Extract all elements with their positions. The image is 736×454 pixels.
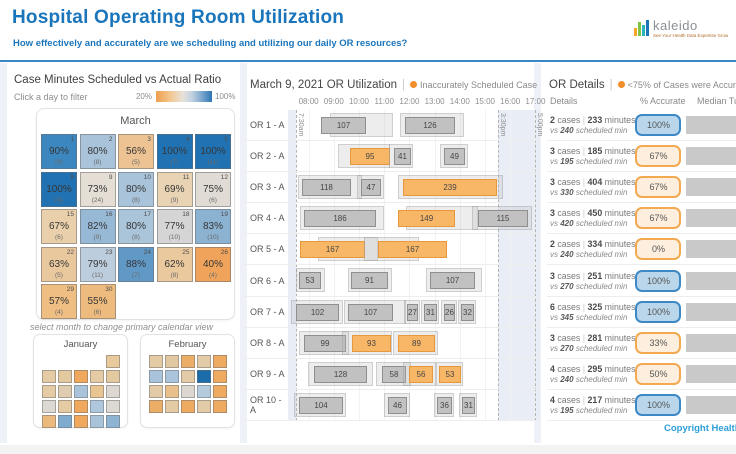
day-ratio: 62%: [158, 259, 192, 270]
or-detail-row[interactable]: 2 cases | 233 minutesvs 240 scheduled mi…: [547, 110, 736, 141]
page-subtitle: How effectively and accurately are we sc…: [13, 38, 407, 49]
gantt-rows: OR 1 - A107126OR 2 - A954149OR 3 - A1184…: [243, 110, 540, 421]
hour-tick: 13:00: [421, 97, 449, 106]
case-bar[interactable]: 53: [439, 366, 461, 383]
calendar-day-19[interactable]: 1983%(10): [195, 209, 231, 244]
details-column-header: Details: [550, 96, 578, 106]
mini-day[interactable]: [165, 400, 179, 413]
detail-scheduled: vs 195 scheduled min: [550, 406, 635, 415]
case-bar[interactable]: 167: [378, 241, 447, 258]
kaleido-logo-tagline: See Your Health Data Expertise Grow: [653, 33, 728, 38]
median-turnover-cell: [681, 365, 736, 383]
day-case-count: (8): [119, 234, 153, 241]
calendar-day-15[interactable]: 1567%(6): [41, 209, 77, 244]
day-number: 2: [109, 136, 113, 143]
day-ratio: 55%: [81, 296, 115, 307]
detail-cases-minutes: 6 cases | 325 minutes: [550, 302, 635, 312]
hour-tick: 12:00: [395, 97, 423, 106]
mini-day[interactable]: [90, 415, 104, 428]
mini-month-title: February: [141, 339, 234, 350]
day-case-count: (10): [196, 234, 230, 241]
or-detail-row[interactable]: 4 cases | 217 minutesvs 195 scheduled mi…: [547, 390, 736, 421]
mini-day[interactable]: [106, 415, 120, 428]
or-room-label: OR 1 - A: [243, 110, 288, 140]
accuracy-cell: 100%: [635, 114, 681, 136]
hour-tick: 09:00: [320, 97, 348, 106]
day-case-count: (4): [42, 309, 76, 316]
detail-text: 2 cases | 334 minutesvs 240 scheduled mi…: [547, 239, 635, 259]
detail-scheduled: vs 240 scheduled min: [550, 250, 635, 259]
day-case-count: (9): [81, 234, 115, 241]
gantt-row: OR 2 - A954149: [243, 141, 540, 172]
median-turnover-bar: [686, 272, 736, 290]
mini-day[interactable]: [213, 400, 227, 413]
mini-day[interactable]: [58, 370, 72, 383]
day-case-count: (6): [42, 234, 76, 241]
detail-text: 3 cases | 185 minutesvs 195 scheduled mi…: [547, 146, 635, 166]
case-bar[interactable]: 26: [444, 304, 455, 321]
day-number: 23: [105, 249, 112, 256]
accuracy-legend-dot-icon: [618, 81, 625, 88]
or-detail-row[interactable]: 4 cases | 295 minutesvs 240 scheduled mi…: [547, 359, 736, 390]
accuracy-badge: 67%: [635, 145, 681, 167]
case-bar[interactable]: 102: [296, 304, 339, 321]
median-turnover-bar: [686, 147, 736, 165]
mini-day[interactable]: [149, 400, 163, 413]
mini-day[interactable]: [181, 400, 195, 413]
case-bar[interactable]: 95: [350, 148, 390, 165]
case-bar[interactable]: 107: [348, 304, 393, 321]
mini-day[interactable]: [42, 415, 56, 428]
detail-cases-minutes: 2 cases | 233 minutes: [550, 115, 635, 125]
day-ratio: 88%: [119, 259, 153, 270]
detail-cases-minutes: 3 cases | 251 minutes: [550, 271, 635, 281]
accuracy-badge: 100%: [635, 394, 681, 416]
detail-scheduled: vs 240 scheduled min: [550, 126, 635, 135]
day-ratio: 80%: [119, 184, 153, 195]
accuracy-badge: 33%: [635, 332, 681, 354]
day-ratio: 80%: [119, 221, 153, 232]
calendar-day-10[interactable]: 1080%(8): [118, 172, 154, 207]
case-bar[interactable]: 36: [437, 397, 452, 414]
median-turnover-cell: [681, 116, 736, 134]
case-bar[interactable]: 186: [304, 210, 376, 227]
case-bar[interactable]: 53: [299, 272, 321, 289]
mini-day[interactable]: [58, 385, 72, 398]
median-turnover-cell: [681, 240, 736, 258]
day-number: 17: [144, 211, 151, 218]
mini-day[interactable]: [74, 370, 88, 383]
gantt-row: OR 10 - A104463631: [243, 390, 540, 421]
day-number: 30: [105, 286, 112, 293]
calendar-day-17[interactable]: 1780%(8): [118, 209, 154, 244]
mini-day[interactable]: [213, 370, 227, 383]
case-bar[interactable]: 31: [424, 304, 437, 321]
mini-day[interactable]: [106, 385, 120, 398]
calendar-panel-title: Case Minutes Scheduled vs Actual Ratio: [14, 74, 221, 86]
mini-day[interactable]: [197, 385, 211, 398]
gantt-header: March 9, 2021 OR Utilization|Inaccuratel…: [250, 79, 537, 91]
legend-max-label: 100%: [215, 92, 235, 101]
calendar-day-25[interactable]: 2562%(8): [157, 247, 193, 282]
day-ratio: 90%: [42, 146, 76, 157]
mini-day[interactable]: [165, 370, 179, 383]
day-ratio: 73%: [81, 184, 115, 195]
calendar-day-22[interactable]: 2263%(5): [41, 247, 77, 282]
gantt-row-plot: 107126: [288, 110, 540, 140]
calendar-day-3[interactable]: 356%(5): [118, 134, 154, 169]
mini-day[interactable]: [181, 355, 195, 368]
day-case-count: (8): [81, 159, 115, 166]
gantt-row: OR 3 - A11847239: [243, 172, 540, 203]
detail-scheduled: vs 270 scheduled min: [550, 344, 635, 353]
hour-tick: 15:00: [471, 97, 499, 106]
detail-text: 2 cases | 233 minutesvs 240 scheduled mi…: [547, 115, 635, 135]
day-number: 5: [224, 136, 228, 143]
mini-month-january[interactable]: January: [33, 334, 128, 428]
detail-text: 3 cases | 251 minutesvs 270 scheduled mi…: [547, 271, 635, 291]
march-calendar-card: March 190%(9)280%(8)356%(5)4100%(7)5100%…: [36, 108, 235, 320]
mini-day[interactable]: [106, 355, 120, 368]
accuracy-cell: 50%: [635, 363, 681, 385]
detail-scheduled: vs 240 scheduled min: [550, 375, 635, 384]
day-number: 3: [147, 136, 151, 143]
day-case-count: (5): [42, 272, 76, 279]
calendar-day-24[interactable]: 2488%(7): [118, 247, 154, 282]
median-turnover-cell: [681, 303, 736, 321]
detail-cases-minutes: 3 cases | 450 minutes: [550, 208, 635, 218]
accuracy-badge: 0%: [635, 238, 681, 260]
kaleido-logo-text: kaleido: [653, 18, 728, 33]
day-ratio: 77%: [158, 221, 192, 232]
median-turnover-cell: [681, 272, 736, 290]
detail-scheduled: vs 195 scheduled min: [550, 157, 635, 166]
case-bar[interactable]: 31: [462, 397, 475, 414]
accuracy-cell: 0%: [635, 238, 681, 260]
or-room-label: OR 8 - A: [243, 328, 288, 358]
gantt-row: OR 8 - A999389: [243, 328, 540, 359]
accuracy-legend-label: <75% of Cases were Accurately Scheduled: [628, 80, 736, 90]
day-case-count: (6): [196, 197, 230, 204]
gantt-hour-axis: 08:0009:0010:0011:0012:0013:0014:0015:00…: [288, 97, 540, 108]
detail-text: 4 cases | 217 minutesvs 195 scheduled mi…: [547, 395, 635, 415]
gantt-row-plot: 186149115: [288, 203, 540, 233]
mini-day[interactable]: [149, 385, 163, 398]
header-pipe: |: [610, 79, 613, 91]
calendar-day-11[interactable]: 1169%(9): [157, 172, 193, 207]
day-ratio: 56%: [119, 146, 153, 157]
inaccurate-legend-label: Inaccurately Scheduled Case: [420, 80, 537, 90]
day-ratio: 40%: [196, 259, 230, 270]
calendar-day-1[interactable]: 190%(9): [41, 134, 77, 169]
day-case-count: (8): [158, 272, 192, 279]
day-case-count: (8): [119, 197, 153, 204]
day-ratio: 63%: [42, 259, 76, 270]
day-case-count: (4): [196, 272, 230, 279]
or-room-label: OR 2 - A: [243, 141, 288, 171]
calendar-day-16[interactable]: 1682%(9): [80, 209, 116, 244]
detail-scheduled: vs 420 scheduled min: [550, 219, 635, 228]
day-ratio: 57%: [42, 296, 76, 307]
mini-day[interactable]: [58, 415, 72, 428]
day-case-count: (7): [158, 159, 192, 166]
day-case-count: (6): [81, 309, 115, 316]
mini-day[interactable]: [42, 370, 56, 383]
or-detail-row[interactable]: 3 cases | 404 minutesvs 330 scheduled mi…: [547, 172, 736, 203]
day-case-count: (5): [119, 159, 153, 166]
accurate-column-header: % Accurate: [640, 96, 686, 106]
calendar-day-9[interactable]: 973%(24): [80, 172, 116, 207]
day-ratio: 100%: [42, 184, 76, 195]
day-ratio: 75%: [196, 184, 230, 195]
case-bar[interactable]: 107: [321, 117, 366, 134]
day-case-count: (9): [42, 159, 76, 166]
hour-tick: 11:00: [370, 97, 398, 106]
accuracy-cell: 100%: [635, 301, 681, 323]
header-pipe: |: [402, 79, 405, 91]
median-turnover-cell: [681, 396, 736, 414]
mini-day[interactable]: [90, 370, 104, 383]
or-detail-row[interactable]: 3 cases | 450 minutesvs 420 scheduled mi…: [547, 203, 736, 234]
or-detail-row[interactable]: 3 cases | 281 minutesvs 270 scheduled mi…: [547, 328, 736, 359]
gantt-row-plot: 10210727312632: [288, 297, 540, 327]
case-bar[interactable]: 27: [407, 304, 418, 321]
mini-day[interactable]: [213, 355, 227, 368]
case-bar[interactable]: 41: [394, 148, 411, 165]
day-number: 12: [221, 174, 228, 181]
calendar-day-12[interactable]: 1275%(6): [195, 172, 231, 207]
kaleido-logo-icon: [630, 20, 650, 36]
day-number: 19: [221, 211, 228, 218]
gantt-row: OR 6 - A5391107: [243, 265, 540, 296]
median-turnover-bar: [686, 209, 736, 227]
mini-day[interactable]: [58, 400, 72, 413]
mini-month-february[interactable]: February: [140, 334, 235, 428]
detail-scheduled: vs 270 scheduled min: [550, 282, 635, 291]
accuracy-badge: 100%: [635, 270, 681, 292]
median-turnover-bar: [686, 365, 736, 383]
or-room-label: OR 6 - A: [243, 265, 288, 295]
day-ratio: 69%: [158, 184, 192, 195]
accuracy-badge: 100%: [635, 114, 681, 136]
hour-tick: 17:00: [521, 97, 549, 106]
case-bar[interactable]: 49: [444, 148, 465, 165]
inaccurate-legend-dot-icon: [410, 81, 417, 88]
hour-tick: 14:00: [446, 97, 474, 106]
mini-day[interactable]: [181, 370, 195, 383]
day-number: 9: [109, 174, 113, 181]
calendar-filter-hint: Click a day to filter: [14, 92, 88, 102]
case-bar[interactable]: 239: [403, 179, 497, 196]
or-detail-row[interactable]: 3 cases | 251 minutesvs 270 scheduled mi…: [547, 265, 736, 296]
median-turnover-bar: [686, 334, 736, 352]
month-title: March: [37, 115, 234, 127]
mini-month-title: January: [34, 339, 127, 350]
mini-day[interactable]: [74, 385, 88, 398]
mini-day[interactable]: [106, 400, 120, 413]
accuracy-badge: 100%: [635, 301, 681, 323]
calendar-day-8[interactable]: 8100%(4): [41, 172, 77, 207]
mini-day[interactable]: [213, 385, 227, 398]
gantt-row-plot: 11847239: [288, 172, 540, 202]
mini-day[interactable]: [42, 400, 56, 413]
dashboard: Hospital Operating Room Utilization How …: [0, 0, 736, 454]
case-bar[interactable]: 91: [351, 272, 388, 289]
day-number: 24: [144, 249, 151, 256]
median-turnover-bar: [686, 303, 736, 321]
or-room-label: OR 4 - A: [243, 203, 288, 233]
day-ratio: 80%: [81, 146, 115, 157]
calendar-day-23[interactable]: 2379%(11): [80, 247, 116, 282]
day-number: 10: [144, 174, 151, 181]
calendar-day-18[interactable]: 1877%(10): [157, 209, 193, 244]
day-ratio: 100%: [158, 146, 192, 157]
legend-min-label: 20%: [124, 92, 152, 101]
day-case-count: (10): [158, 234, 192, 241]
case-bar[interactable]: 99: [304, 335, 346, 352]
detail-text: 3 cases | 281 minutesvs 270 scheduled mi…: [547, 333, 635, 353]
accuracy-cell: 67%: [635, 145, 681, 167]
case-bar[interactable]: 104: [299, 397, 343, 414]
calendar-day-2[interactable]: 280%(8): [80, 134, 116, 169]
header-divider: [0, 60, 736, 62]
accuracy-cell: 67%: [635, 207, 681, 229]
or-room-label: OR 10 - A: [243, 390, 288, 420]
median-turnover-cell: [681, 147, 736, 165]
details-title: OR Details: [549, 79, 605, 91]
day-case-count: (11): [196, 159, 230, 166]
day-case-count: (24): [81, 197, 115, 204]
case-bar[interactable]: 89: [398, 335, 435, 352]
median-turnover-bar: [686, 116, 736, 134]
day-ratio: 100%: [196, 146, 230, 157]
median-turnover-bar: [686, 240, 736, 258]
day-number: 25: [182, 249, 189, 256]
or-room-label: OR 7 - A: [243, 297, 288, 327]
gantt-row-plot: 104463631: [288, 390, 540, 420]
or-detail-row[interactable]: 6 cases | 325 minutesvs 345 scheduled mi…: [547, 297, 736, 328]
mini-day[interactable]: [149, 370, 163, 383]
accuracy-badge: 67%: [635, 207, 681, 229]
mini-day[interactable]: [197, 355, 211, 368]
mini-day[interactable]: [165, 355, 179, 368]
day-number: 18: [182, 211, 189, 218]
detail-scheduled: vs 330 scheduled min: [550, 188, 635, 197]
calendar-day-30[interactable]: 3055%(6): [80, 284, 116, 319]
case-bar[interactable]: 115: [478, 210, 528, 227]
case-bar[interactable]: 126: [405, 117, 455, 134]
gantt-row: OR 1 - A107126: [243, 110, 540, 141]
accuracy-badge: 67%: [635, 176, 681, 198]
gantt-row-plot: 167167: [288, 234, 540, 264]
calendar-day-5[interactable]: 5100%(11): [195, 134, 231, 169]
left-gutter: [0, 63, 7, 443]
day-ratio: 82%: [81, 221, 115, 232]
detail-cases-minutes: 4 cases | 295 minutes: [550, 364, 635, 374]
median-turn-column-header: Median Turn: [697, 96, 736, 106]
detail-text: 6 cases | 325 minutesvs 345 scheduled mi…: [547, 302, 635, 322]
case-bar[interactable]: 118: [302, 179, 351, 196]
detail-cases-minutes: 2 cases | 334 minutes: [550, 239, 635, 249]
gantt-row: OR 4 - A186149115: [243, 203, 540, 234]
mini-month-grid: [149, 355, 227, 413]
case-bar[interactable]: 46: [388, 397, 407, 414]
logo-area: kaleido See Your Health Data Expertise G…: [630, 9, 736, 47]
page-title: Hospital Operating Room Utilization: [12, 7, 344, 29]
day-case-count: (4): [42, 197, 76, 204]
or-detail-row[interactable]: 3 cases | 185 minutesvs 195 scheduled mi…: [547, 141, 736, 172]
calendar-day-4[interactable]: 4100%(7): [157, 134, 193, 169]
hour-tick: 10:00: [345, 97, 373, 106]
accuracy-cell: 100%: [635, 270, 681, 292]
detail-text: 4 cases | 295 minutesvs 240 scheduled mi…: [547, 364, 635, 384]
case-bar[interactable]: 149: [398, 210, 455, 227]
case-bar[interactable]: 47: [361, 179, 381, 196]
case-bar[interactable]: 32: [461, 304, 474, 321]
detail-cases-minutes: 4 cases | 217 minutes: [550, 395, 635, 405]
gantt-row-plot: 128585653: [288, 359, 540, 389]
mini-day[interactable]: [42, 385, 56, 398]
median-turnover-cell: [681, 334, 736, 352]
day-case-count: (11): [81, 272, 115, 279]
median-turnover-cell: [681, 209, 736, 227]
case-bar[interactable]: 128: [314, 366, 367, 383]
calendar-day-29[interactable]: 2957%(4): [41, 284, 77, 319]
calendar-day-26[interactable]: 2640%(4): [195, 247, 231, 282]
details-header: OR Details|<75% of Cases were Accurately…: [549, 79, 736, 91]
detail-text: 3 cases | 450 minutesvs 420 scheduled mi…: [547, 208, 635, 228]
gantt-row-plot: 5391107: [288, 265, 540, 295]
details-rows: 2 cases | 233 minutesvs 240 scheduled mi…: [547, 110, 736, 421]
mini-day[interactable]: [197, 400, 211, 413]
or-room-label: OR 5 - A: [243, 234, 288, 264]
mini-day[interactable]: [90, 385, 104, 398]
case-bar[interactable]: 107: [430, 272, 475, 289]
mini-day[interactable]: [74, 415, 88, 428]
hour-tick: 08:00: [295, 97, 323, 106]
mini-day[interactable]: [197, 370, 211, 383]
accuracy-cell: 33%: [635, 332, 681, 354]
day-number: 22: [67, 249, 74, 256]
mini-day[interactable]: [74, 400, 88, 413]
case-bar[interactable]: 93: [352, 335, 391, 352]
copyright-link[interactable]: Copyright HealthD: [664, 423, 736, 434]
mini-day[interactable]: [149, 355, 163, 368]
footer-strip: [0, 445, 736, 454]
case-bar[interactable]: 56: [409, 366, 433, 383]
case-bar[interactable]: 167: [300, 241, 365, 258]
detail-cases-minutes: 3 cases | 404 minutes: [550, 177, 635, 187]
median-turnover-cell: [681, 178, 736, 196]
detail-scheduled: vs 345 scheduled min: [550, 313, 635, 322]
gantt-row: OR 7 - A10210727312632: [243, 297, 540, 328]
gantt-row: OR 9 - A128585653: [243, 359, 540, 390]
mini-day[interactable]: [106, 370, 120, 383]
day-case-count: (7): [119, 272, 153, 279]
day-number: 16: [105, 211, 112, 218]
mini-day[interactable]: [181, 385, 195, 398]
day-number: 11: [183, 174, 190, 181]
mini-day[interactable]: [90, 400, 104, 413]
accuracy-cell: 100%: [635, 394, 681, 416]
detail-cases-minutes: 3 cases | 185 minutes: [550, 146, 635, 156]
day-ratio: 67%: [42, 221, 76, 232]
mini-day[interactable]: [165, 385, 179, 398]
mini-month-grid: [42, 355, 120, 428]
gantt-row-plot: 954149: [288, 141, 540, 171]
or-detail-row[interactable]: 2 cases | 334 minutesvs 240 scheduled mi…: [547, 234, 736, 265]
mini-calendar-note: select month to change primary calendar …: [0, 322, 243, 332]
